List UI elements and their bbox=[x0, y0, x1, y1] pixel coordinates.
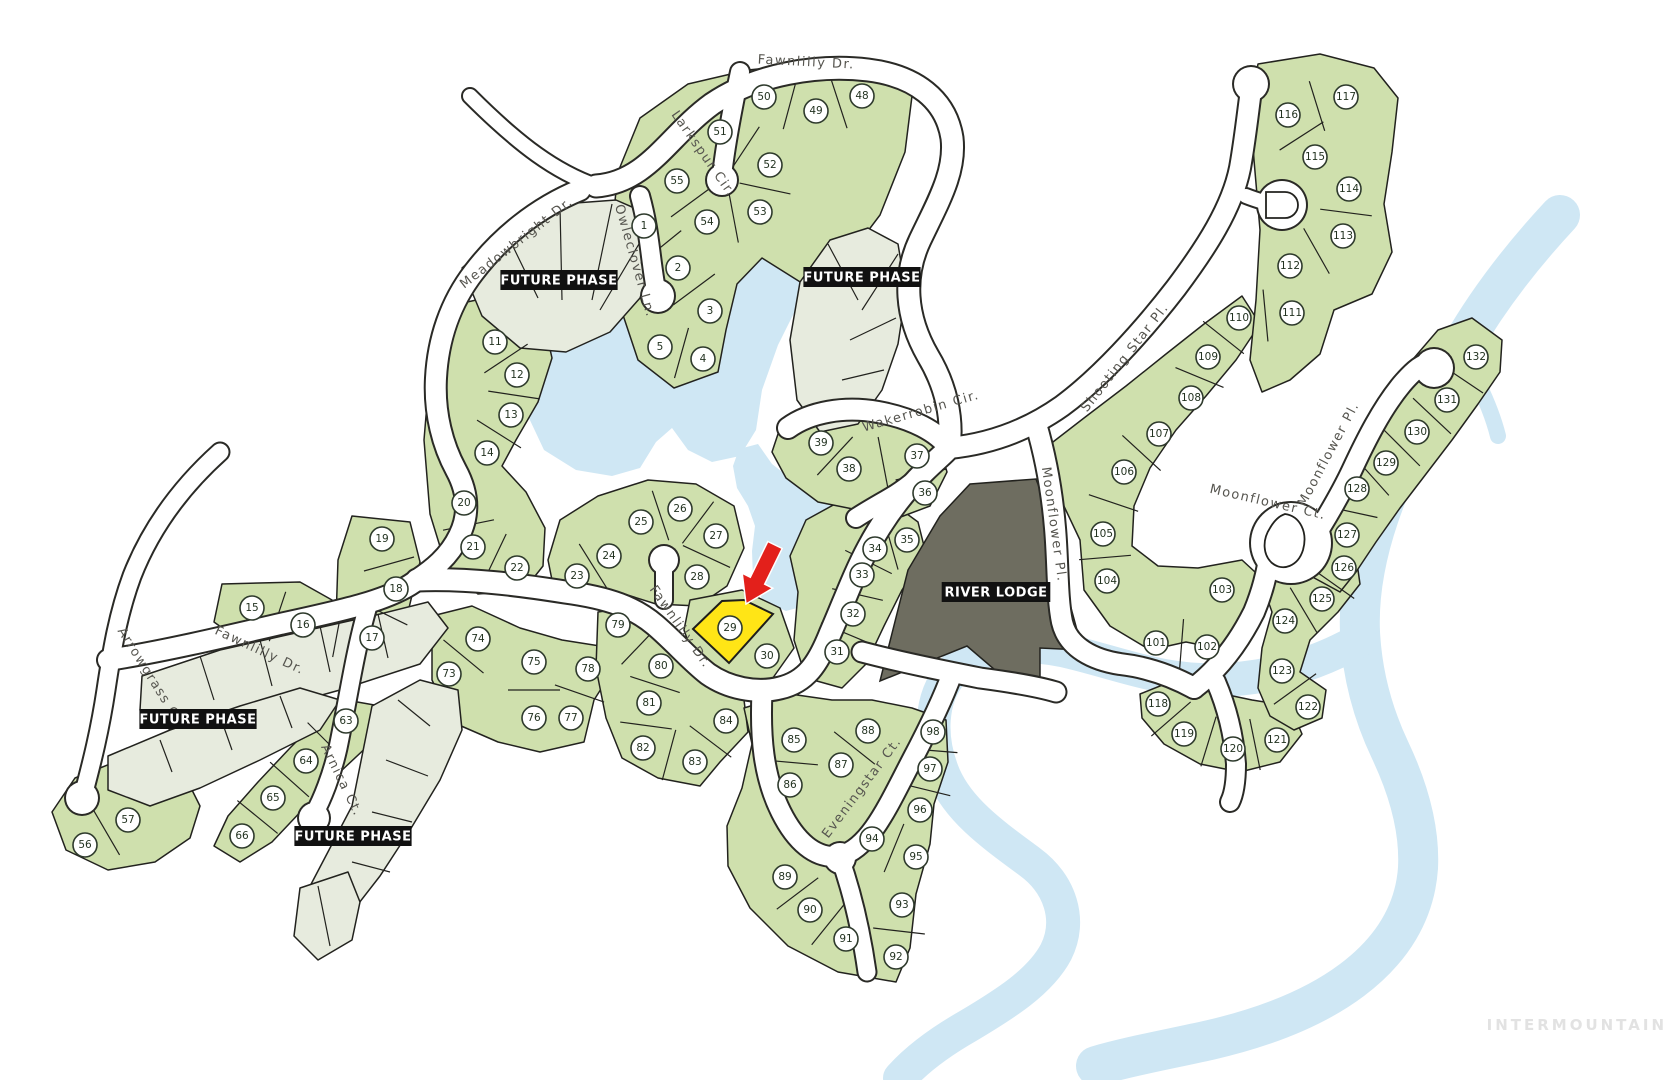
lot-number: 36 bbox=[918, 487, 932, 499]
lot-number: 32 bbox=[846, 608, 859, 620]
lot-number: 109 bbox=[1198, 351, 1218, 363]
lot-number: 11 bbox=[488, 336, 501, 348]
lot-82-marker[interactable]: 82 bbox=[631, 736, 655, 760]
lot-number: 129 bbox=[1376, 457, 1396, 469]
lot-80-marker[interactable]: 80 bbox=[649, 654, 673, 678]
lot-number: 52 bbox=[763, 159, 776, 171]
lot-number: 127 bbox=[1337, 529, 1357, 541]
lot-number: 77 bbox=[564, 712, 577, 724]
river-lodge-label: RIVER LODGE bbox=[942, 582, 1051, 602]
lot-number: 92 bbox=[889, 951, 902, 963]
lot-number: 124 bbox=[1275, 615, 1295, 627]
lot-number: 106 bbox=[1114, 466, 1134, 478]
lot-102-marker[interactable]: 102 bbox=[1195, 635, 1219, 659]
lot-114-marker[interactable]: 114 bbox=[1337, 177, 1361, 201]
lot-39-marker[interactable]: 39 bbox=[809, 431, 833, 455]
lot-number: 90 bbox=[803, 904, 816, 916]
cul-de-sac bbox=[650, 546, 678, 574]
lot-27-marker[interactable]: 27 bbox=[704, 524, 728, 548]
lot-12-marker[interactable]: 12 bbox=[505, 363, 529, 387]
lot-number: 73 bbox=[442, 668, 455, 680]
lot-36-marker[interactable]: 36 bbox=[913, 481, 937, 505]
lot-30-marker[interactable]: 30 bbox=[755, 644, 779, 668]
lot-number: 50 bbox=[757, 91, 770, 103]
lot-121-marker[interactable]: 121 bbox=[1265, 728, 1289, 752]
watermark: INTERMOUNTAIN bbox=[1487, 1016, 1667, 1034]
lot-number: 1 bbox=[641, 220, 648, 232]
lot-number: 93 bbox=[895, 899, 908, 911]
lot-number: 65 bbox=[266, 792, 279, 804]
lot-125-marker[interactable]: 125 bbox=[1310, 587, 1334, 611]
lot-132-marker[interactable]: 132 bbox=[1464, 345, 1488, 369]
lot-number: 49 bbox=[809, 105, 822, 117]
lot-130-marker[interactable]: 130 bbox=[1405, 420, 1429, 444]
lot-109-marker[interactable]: 109 bbox=[1196, 345, 1220, 369]
lot-number: 53 bbox=[753, 206, 766, 218]
lot-123-marker[interactable]: 123 bbox=[1270, 659, 1294, 683]
lot-116-marker[interactable]: 116 bbox=[1276, 103, 1300, 127]
lot-4-marker[interactable]: 4 bbox=[691, 347, 715, 371]
lot-number: 79 bbox=[611, 619, 624, 631]
lot-number: 29 bbox=[723, 622, 736, 634]
lot-number: 75 bbox=[527, 656, 540, 668]
lot-98-marker[interactable]: 98 bbox=[921, 720, 945, 744]
lot-number: 107 bbox=[1149, 428, 1169, 440]
lot-120-marker[interactable]: 120 bbox=[1221, 737, 1245, 761]
lot-16-marker[interactable]: 16 bbox=[291, 613, 315, 637]
lot-20-marker[interactable]: 20 bbox=[452, 491, 476, 515]
lot-1-marker[interactable]: 1 bbox=[632, 214, 656, 238]
lot-2-marker[interactable]: 2 bbox=[666, 256, 690, 280]
lot-51-marker[interactable]: 51 bbox=[708, 120, 732, 144]
lot-number: 81 bbox=[642, 697, 655, 709]
lot-number: 64 bbox=[299, 755, 313, 767]
lot-number: 84 bbox=[719, 715, 733, 727]
lot-number: 76 bbox=[527, 712, 541, 724]
lot-number: 18 bbox=[389, 583, 402, 595]
lot-number: 112 bbox=[1280, 260, 1300, 272]
lot-86-marker[interactable]: 86 bbox=[778, 773, 802, 797]
lot-21-marker[interactable]: 21 bbox=[461, 535, 485, 559]
lot-number: 14 bbox=[480, 447, 494, 459]
lot-53-marker[interactable]: 53 bbox=[748, 200, 772, 224]
lot-97-marker[interactable]: 97 bbox=[918, 757, 942, 781]
lot-34-marker[interactable]: 34 bbox=[863, 537, 887, 561]
lot-18-marker[interactable]: 18 bbox=[384, 577, 408, 601]
lot-28-marker[interactable]: 28 bbox=[685, 565, 709, 589]
lot-24-marker[interactable]: 24 bbox=[597, 544, 621, 568]
lot-number: 35 bbox=[900, 534, 913, 546]
lot-number: 25 bbox=[634, 516, 647, 528]
lot-35-marker[interactable]: 35 bbox=[895, 528, 919, 552]
lot-number: 37 bbox=[910, 450, 923, 462]
cluster-101-110 bbox=[1040, 296, 1268, 650]
lot-number: 104 bbox=[1097, 575, 1117, 587]
lot-number: 48 bbox=[855, 90, 868, 102]
lot-number: 15 bbox=[245, 602, 258, 614]
lot-77-marker[interactable]: 77 bbox=[559, 706, 583, 730]
lot-number: 30 bbox=[760, 650, 773, 662]
lot-111-marker[interactable]: 111 bbox=[1280, 301, 1304, 325]
lot-number: 115 bbox=[1305, 151, 1325, 163]
lot-number: 125 bbox=[1312, 593, 1332, 605]
hammerhead-keyhole bbox=[1266, 192, 1298, 218]
future-phase-label: FUTURE PHASE bbox=[500, 270, 617, 290]
lot-number: 110 bbox=[1229, 312, 1249, 324]
lot-64-marker[interactable]: 64 bbox=[294, 749, 318, 773]
lot-number: 34 bbox=[868, 543, 882, 555]
lot-29-marker[interactable]: 29 bbox=[718, 616, 742, 640]
lot-75-marker[interactable]: 75 bbox=[522, 650, 546, 674]
lot-number: 113 bbox=[1333, 230, 1353, 242]
future-phase-label-text: FUTURE PHASE bbox=[140, 713, 257, 728]
lot-128-marker[interactable]: 128 bbox=[1345, 477, 1369, 501]
lot-number: 31 bbox=[830, 646, 843, 658]
lot-127-marker[interactable]: 127 bbox=[1335, 523, 1359, 547]
lot-91-marker[interactable]: 91 bbox=[834, 927, 858, 951]
lot-65-marker[interactable]: 65 bbox=[261, 786, 285, 810]
lot-number: 83 bbox=[688, 756, 701, 768]
lot-number: 85 bbox=[787, 734, 800, 746]
future-phase-label: FUTURE PHASE bbox=[294, 826, 411, 846]
lot-85-marker[interactable]: 85 bbox=[782, 728, 806, 752]
lot-95-marker[interactable]: 95 bbox=[904, 845, 928, 869]
lot-115-marker[interactable]: 115 bbox=[1303, 145, 1327, 169]
lot-number: 55 bbox=[670, 175, 683, 187]
lot-14-marker[interactable]: 14 bbox=[475, 441, 499, 465]
lot-122-marker[interactable]: 122 bbox=[1296, 695, 1320, 719]
lot-66-marker[interactable]: 66 bbox=[230, 824, 254, 848]
lot-number: 118 bbox=[1148, 698, 1168, 710]
lot-74-marker[interactable]: 74 bbox=[466, 627, 490, 651]
lot-49-marker[interactable]: 49 bbox=[804, 99, 828, 123]
future-phase-label-text: FUTURE PHASE bbox=[804, 271, 921, 286]
lot-number: 116 bbox=[1278, 109, 1298, 121]
lot-number: 82 bbox=[636, 742, 649, 754]
lot-number: 101 bbox=[1146, 637, 1166, 649]
lot-number: 78 bbox=[581, 663, 594, 675]
lot-56-marker[interactable]: 56 bbox=[73, 833, 97, 857]
lot-110-marker[interactable]: 110 bbox=[1227, 306, 1251, 330]
lot-3-marker[interactable]: 3 bbox=[698, 299, 722, 323]
lot-19-marker[interactable]: 19 bbox=[370, 527, 394, 551]
lot-number: 108 bbox=[1181, 392, 1201, 404]
lot-number: 16 bbox=[296, 619, 310, 631]
future-phase-label-text: FUTURE PHASE bbox=[501, 274, 618, 289]
lot-37-marker[interactable]: 37 bbox=[905, 444, 929, 468]
lot-number: 123 bbox=[1272, 665, 1292, 677]
lot-number: 122 bbox=[1298, 701, 1318, 713]
lot-31-marker[interactable]: 31 bbox=[825, 640, 849, 664]
lot-76-marker[interactable]: 76 bbox=[522, 706, 546, 730]
lot-83-marker[interactable]: 83 bbox=[683, 750, 707, 774]
future-phase-label: FUTURE PHASE bbox=[803, 267, 920, 287]
future-phase-label-text: FUTURE PHASE bbox=[295, 830, 412, 845]
lot-126-marker[interactable]: 126 bbox=[1332, 556, 1356, 580]
cul-de-sac bbox=[66, 782, 98, 814]
lot-5-marker[interactable]: 5 bbox=[648, 335, 672, 359]
lot-number: 26 bbox=[673, 503, 687, 515]
lot-55-marker[interactable]: 55 bbox=[665, 169, 689, 193]
lot-108-marker[interactable]: 108 bbox=[1179, 386, 1203, 410]
lot-number: 24 bbox=[602, 550, 616, 562]
cul-de-sac bbox=[1234, 67, 1268, 101]
lot-113-marker[interactable]: 113 bbox=[1331, 224, 1355, 248]
lot-number: 95 bbox=[909, 851, 922, 863]
lot-number: 96 bbox=[913, 804, 927, 816]
lot-104-marker[interactable]: 104 bbox=[1095, 569, 1119, 593]
lot-number: 105 bbox=[1093, 528, 1113, 540]
lot-number: 63 bbox=[339, 715, 352, 727]
lot-number: 23 bbox=[570, 570, 583, 582]
lot-124-marker[interactable]: 124 bbox=[1273, 609, 1297, 633]
lot-15-marker[interactable]: 15 bbox=[240, 596, 264, 620]
lot-number: 87 bbox=[834, 759, 847, 771]
lot-number: 39 bbox=[814, 437, 827, 449]
lot-number: 131 bbox=[1437, 394, 1457, 406]
lot-number: 28 bbox=[690, 571, 703, 583]
lot-101-marker[interactable]: 101 bbox=[1144, 631, 1168, 655]
lot-106-marker[interactable]: 106 bbox=[1112, 460, 1136, 484]
lot-number: 88 bbox=[861, 725, 874, 737]
lot-number: 128 bbox=[1347, 483, 1367, 495]
lot-number: 33 bbox=[855, 569, 868, 581]
lot-129-marker[interactable]: 129 bbox=[1374, 451, 1398, 475]
lot-25-marker[interactable]: 25 bbox=[629, 510, 653, 534]
lot-number: 132 bbox=[1466, 351, 1486, 363]
lot-number: 119 bbox=[1174, 728, 1194, 740]
lot-number: 103 bbox=[1212, 584, 1232, 596]
lot-number: 66 bbox=[235, 830, 249, 842]
lot-number: 4 bbox=[700, 353, 707, 365]
lot-33-marker[interactable]: 33 bbox=[850, 563, 874, 587]
lot-107-marker[interactable]: 107 bbox=[1147, 422, 1171, 446]
lot-number: 126 bbox=[1334, 562, 1354, 574]
lot-105-marker[interactable]: 105 bbox=[1091, 522, 1115, 546]
lot-119-marker[interactable]: 119 bbox=[1172, 722, 1196, 746]
subdivision-plat-map: 1234511121314151617181920212223242526272… bbox=[0, 0, 1670, 1080]
lot-89-marker[interactable]: 89 bbox=[773, 865, 797, 889]
future-phase-label: FUTURE PHASE bbox=[139, 709, 256, 729]
lot-52-marker[interactable]: 52 bbox=[758, 153, 782, 177]
lot-number: 22 bbox=[510, 562, 523, 574]
lot-number: 51 bbox=[713, 126, 726, 138]
lot-32-marker[interactable]: 32 bbox=[841, 602, 865, 626]
lot-number: 56 bbox=[78, 839, 92, 851]
lot-112-marker[interactable]: 112 bbox=[1278, 254, 1302, 278]
lot-number: 80 bbox=[654, 660, 667, 672]
lot-number: 19 bbox=[375, 533, 388, 545]
lot-22-marker[interactable]: 22 bbox=[505, 556, 529, 580]
lot-number: 120 bbox=[1223, 743, 1243, 755]
lot-number: 121 bbox=[1267, 734, 1287, 746]
lot-13-marker[interactable]: 13 bbox=[499, 403, 523, 427]
lot-88-marker[interactable]: 88 bbox=[856, 719, 880, 743]
lot-26-marker[interactable]: 26 bbox=[668, 497, 692, 521]
lot-81-marker[interactable]: 81 bbox=[637, 691, 661, 715]
lot-38-marker[interactable]: 38 bbox=[837, 457, 861, 481]
lot-number: 117 bbox=[1336, 91, 1356, 103]
lot-96-marker[interactable]: 96 bbox=[908, 798, 932, 822]
lot-number: 27 bbox=[709, 530, 722, 542]
lot-number: 2 bbox=[675, 262, 682, 274]
lot-number: 89 bbox=[778, 871, 791, 883]
lot-118-marker[interactable]: 118 bbox=[1146, 692, 1170, 716]
lot-number: 114 bbox=[1339, 183, 1359, 195]
lot-73-marker[interactable]: 73 bbox=[437, 662, 461, 686]
lot-94-marker[interactable]: 94 bbox=[860, 827, 884, 851]
cul-de-sac bbox=[825, 843, 855, 873]
cul-de-sac bbox=[1415, 349, 1453, 387]
lot-23-marker[interactable]: 23 bbox=[565, 564, 589, 588]
lot-90-marker[interactable]: 90 bbox=[798, 898, 822, 922]
lot-number: 12 bbox=[510, 369, 523, 381]
lot-number: 21 bbox=[466, 541, 479, 553]
lot-92-marker[interactable]: 92 bbox=[884, 945, 908, 969]
future-arnica-south bbox=[294, 872, 360, 960]
lot-number: 17 bbox=[365, 632, 378, 644]
lot-number: 54 bbox=[700, 216, 714, 228]
lot-number: 86 bbox=[783, 779, 797, 791]
lot-79-marker[interactable]: 79 bbox=[606, 613, 630, 637]
lot-117-marker[interactable]: 117 bbox=[1334, 85, 1358, 109]
river-lodge-label-text: RIVER LODGE bbox=[944, 586, 1047, 601]
lot-number: 57 bbox=[121, 814, 134, 826]
lot-number: 97 bbox=[923, 763, 936, 775]
lot-78-marker[interactable]: 78 bbox=[576, 657, 600, 681]
lot-54-marker[interactable]: 54 bbox=[695, 210, 719, 234]
lot-131-marker[interactable]: 131 bbox=[1435, 388, 1459, 412]
lot-number: 91 bbox=[839, 933, 852, 945]
lot-number: 74 bbox=[471, 633, 485, 645]
lot-number: 102 bbox=[1197, 641, 1217, 653]
lot-number: 38 bbox=[842, 463, 855, 475]
lot-84-marker[interactable]: 84 bbox=[714, 709, 738, 733]
lot-number: 98 bbox=[926, 726, 939, 738]
lot-number: 13 bbox=[504, 409, 517, 421]
lot-93-marker[interactable]: 93 bbox=[890, 893, 914, 917]
lot-number: 5 bbox=[657, 341, 664, 353]
lot-number: 20 bbox=[457, 497, 470, 509]
lot-number: 130 bbox=[1407, 426, 1427, 438]
lot-number: 111 bbox=[1282, 307, 1302, 319]
lot-48-marker[interactable]: 48 bbox=[850, 84, 874, 108]
lot-57-marker[interactable]: 57 bbox=[116, 808, 140, 832]
lot-number: 3 bbox=[707, 305, 714, 317]
lot-50-marker[interactable]: 50 bbox=[752, 85, 776, 109]
lot-11-marker[interactable]: 11 bbox=[483, 330, 507, 354]
lot-number: 94 bbox=[865, 833, 879, 845]
lot-17-marker[interactable]: 17 bbox=[360, 626, 384, 650]
lot-63-marker[interactable]: 63 bbox=[334, 709, 358, 733]
lot-103-marker[interactable]: 103 bbox=[1210, 578, 1234, 602]
lot-87-marker[interactable]: 87 bbox=[829, 753, 853, 777]
